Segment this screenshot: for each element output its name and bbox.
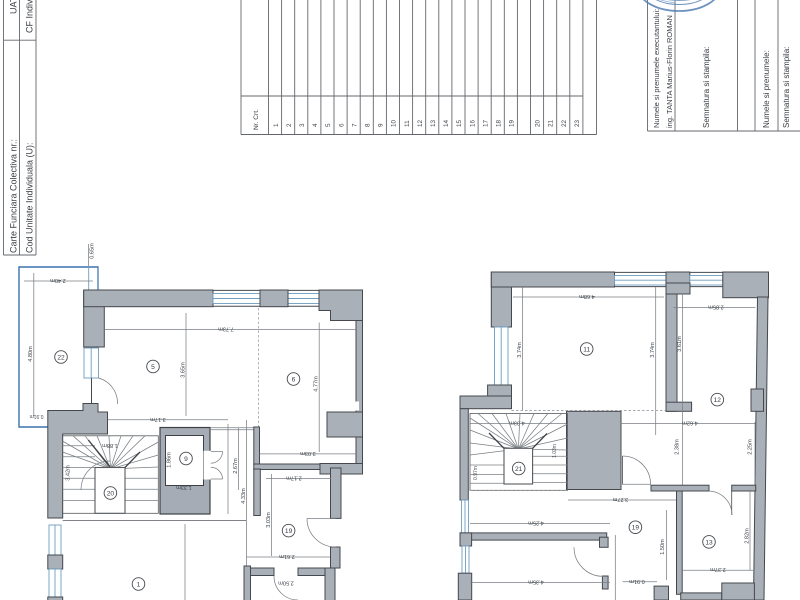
svg-text:3.03m: 3.03m — [266, 512, 272, 528]
svg-text:5: 5 — [151, 364, 155, 371]
svg-text:16: 16 — [469, 119, 476, 127]
svg-text:ing. TANTA Marius-Florin ROMAN: ing. TANTA Marius-Florin ROMAN — [665, 15, 674, 128]
svg-text:Numele si prenumele executantu: Numele si prenumele executantului: — [652, 9, 661, 128]
svg-text:3.27m: 3.27m — [612, 496, 628, 502]
svg-text:4.03m: 4.03m — [509, 420, 525, 426]
svg-text:2.67m: 2.67m — [233, 458, 239, 474]
svg-text:21: 21 — [515, 466, 523, 473]
svg-text:17: 17 — [482, 119, 489, 127]
svg-text:13: 13 — [430, 119, 437, 127]
svg-text:9: 9 — [378, 123, 385, 127]
svg-text:CF Individ: CF Individ — [25, 0, 35, 33]
svg-text:19: 19 — [632, 525, 640, 532]
svg-text:2.37m: 2.37m — [710, 566, 726, 572]
svg-text:22: 22 — [561, 119, 568, 127]
svg-text:4.68m: 4.68m — [579, 293, 595, 299]
svg-text:Semnatura si stampila:: Semnatura si stampila: — [782, 47, 791, 128]
svg-text:0.91m: 0.91m — [30, 413, 44, 419]
svg-text:7.73m: 7.73m — [218, 326, 234, 332]
svg-text:4: 4 — [312, 123, 319, 127]
svg-text:21: 21 — [548, 119, 555, 127]
svg-text:23: 23 — [574, 119, 581, 127]
svg-text:10: 10 — [391, 119, 398, 127]
svg-text:11: 11 — [583, 347, 590, 354]
svg-text:20: 20 — [107, 491, 115, 498]
svg-text:4.80m: 4.80m — [28, 346, 34, 362]
svg-text:3.42m: 3.42m — [66, 465, 72, 481]
svg-text:3.03m: 3.03m — [300, 450, 316, 456]
svg-text:6: 6 — [292, 377, 296, 384]
svg-text:2.38m: 2.38m — [674, 439, 680, 455]
svg-text:13: 13 — [705, 539, 713, 546]
svg-text:2.17m: 2.17m — [286, 475, 302, 481]
svg-text:1.33m: 1.33m — [176, 484, 192, 490]
svg-text:7: 7 — [351, 123, 358, 127]
svg-text:3: 3 — [299, 123, 306, 127]
svg-text:20: 20 — [535, 119, 542, 127]
svg-text:Nr. Crt.: Nr. Crt. — [253, 109, 260, 130]
svg-text:3.17m: 3.17m — [150, 416, 166, 422]
svg-text:1: 1 — [137, 582, 141, 589]
svg-text:14: 14 — [443, 119, 450, 127]
svg-text:UAT: UAT — [9, 0, 19, 14]
svg-text:18: 18 — [496, 119, 503, 127]
svg-text:1.86m: 1.86m — [167, 452, 173, 468]
svg-text:12: 12 — [714, 397, 722, 404]
svg-text:Cod Unitate Individuala (U):: Cod Unitate Individuala (U): — [25, 142, 35, 253]
svg-text:19: 19 — [509, 119, 516, 127]
svg-text:1.03m: 1.03m — [552, 444, 558, 458]
svg-text:4.35m: 4.35m — [528, 579, 544, 585]
svg-text:4.33m: 4.33m — [241, 488, 247, 504]
svg-text:3.65m: 3.65m — [181, 362, 187, 378]
svg-text:4.62m: 4.62m — [682, 420, 698, 426]
svg-text:0.91m: 0.91m — [629, 578, 645, 584]
svg-text:1.88m: 1.88m — [102, 442, 118, 448]
svg-text:2.82m: 2.82m — [745, 528, 751, 544]
svg-text:2.85m: 2.85m — [708, 304, 724, 310]
svg-text:Carte Funciara Colectiva nr.:: Carte Funciara Colectiva nr.: — [9, 139, 19, 253]
svg-text:19: 19 — [285, 528, 293, 535]
svg-text:3.74m: 3.74m — [650, 342, 656, 358]
svg-text:3.61m: 3.61m — [677, 336, 683, 352]
svg-text:3.74m: 3.74m — [517, 342, 523, 358]
svg-text:4.77m: 4.77m — [314, 376, 320, 392]
svg-text:8: 8 — [365, 123, 372, 127]
svg-text:12: 12 — [417, 119, 424, 127]
svg-text:1.50m: 1.50m — [660, 539, 666, 555]
svg-text:2.61m: 2.61m — [279, 553, 295, 559]
svg-text:0.65m: 0.65m — [90, 243, 96, 259]
svg-text:2.40m: 2.40m — [50, 277, 66, 283]
svg-text:2.50m: 2.50m — [278, 580, 294, 586]
svg-text:5: 5 — [325, 123, 332, 127]
svg-text:0.97m: 0.97m — [473, 466, 479, 480]
svg-text:11: 11 — [404, 120, 411, 127]
svg-text:Numele si prenumele:: Numele si prenumele: — [762, 50, 771, 128]
svg-text:22: 22 — [57, 355, 65, 362]
svg-text:Semnatura si stampila:: Semnatura si stampila: — [702, 47, 711, 128]
svg-text:2: 2 — [286, 123, 293, 127]
svg-text:9: 9 — [184, 456, 188, 463]
svg-text:1: 1 — [273, 123, 280, 127]
svg-text:6: 6 — [338, 123, 345, 127]
svg-text:15: 15 — [456, 119, 463, 127]
svg-text:4.25m: 4.25m — [528, 520, 544, 526]
svg-text:2.25m: 2.25m — [748, 439, 754, 455]
